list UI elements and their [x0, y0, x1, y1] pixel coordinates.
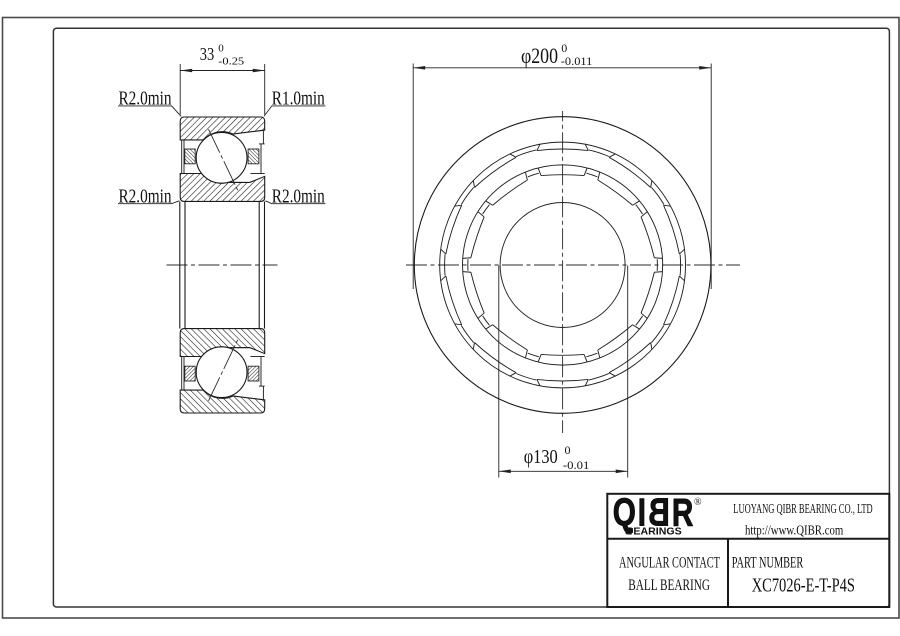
svg-text:XC7026-E-T-P4S: XC7026-E-T-P4S [752, 576, 855, 597]
svg-text:R2.0min: R2.0min [272, 187, 325, 208]
svg-text:EARINGS: EARINGS [633, 527, 681, 538]
svg-text:φ200: φ200 [521, 43, 558, 68]
svg-text:-0.01: -0.01 [563, 458, 590, 472]
svg-text:0: 0 [218, 42, 224, 54]
svg-text:LUOYANG QIBR BEARING CO., LTD: LUOYANG QIBR BEARING CO., LTD [733, 502, 872, 517]
svg-text:R1.0min: R1.0min [272, 89, 325, 110]
svg-text:-0.011: -0.011 [561, 54, 593, 68]
svg-text:33: 33 [200, 44, 215, 64]
svg-text:φ130: φ130 [524, 446, 558, 468]
svg-text:PART NUMBER: PART NUMBER [732, 554, 804, 571]
svg-text:-0.25: -0.25 [218, 56, 245, 68]
svg-text:R2.0min: R2.0min [119, 187, 172, 208]
svg-text:R2.0min: R2.0min [119, 89, 172, 110]
svg-text:http://www.QIBR.com: http://www.QIBR.com [745, 524, 843, 539]
svg-text:ANGULAR CONTACT: ANGULAR CONTACT [619, 554, 720, 571]
svg-text:B: B [624, 527, 632, 538]
svg-text:0: 0 [565, 443, 571, 457]
svg-text:BALL BEARING: BALL BEARING [628, 577, 710, 594]
svg-text:®: ® [694, 497, 702, 508]
